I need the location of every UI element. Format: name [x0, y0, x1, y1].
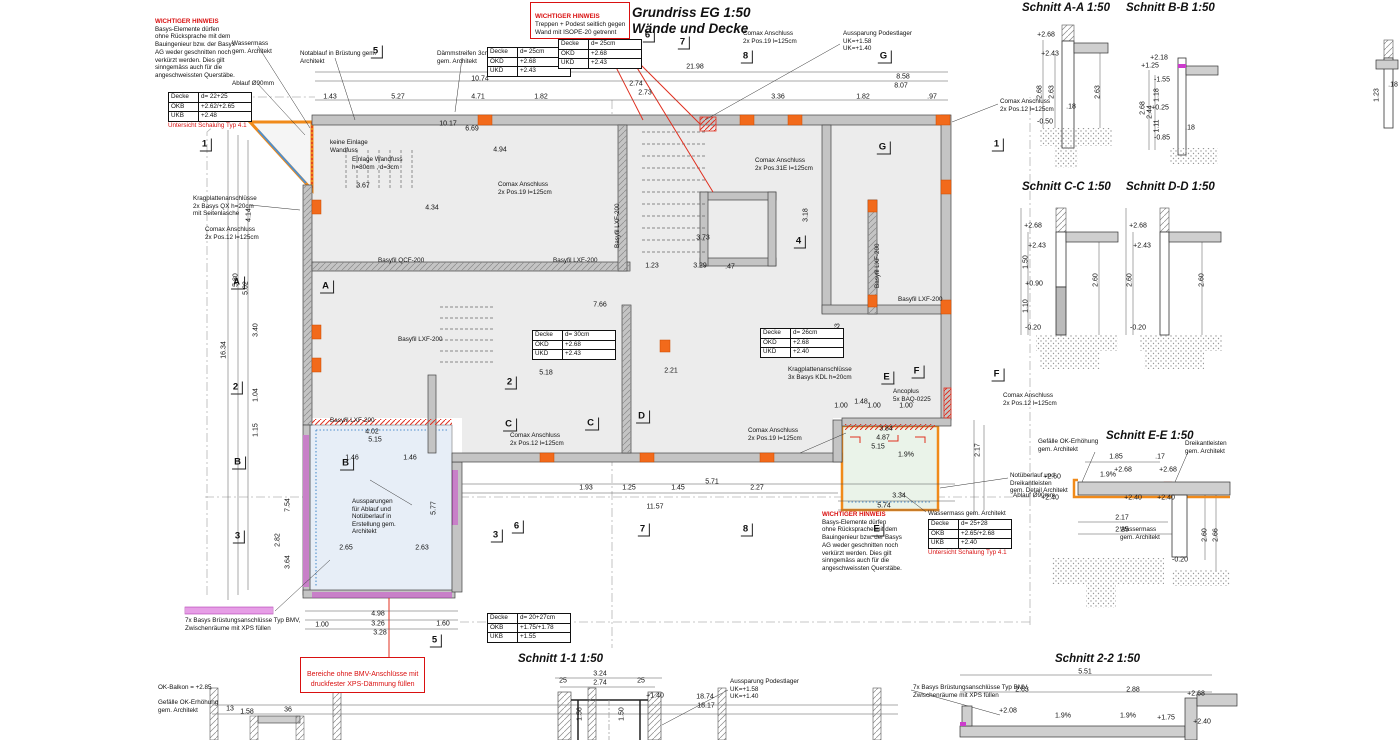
- annotation-label: Notablauf in Brüstung gem. Architekt: [300, 50, 376, 65]
- annotation-label: Comax Anschluss 2x Pos.19 l=125cm: [743, 30, 797, 45]
- dimension-label: 3.18: [803, 208, 810, 222]
- formwork-note: Untersicht Schalung Typ 4.1: [928, 549, 1007, 556]
- dimension-label: 5.74: [877, 503, 891, 510]
- grid-axis-label: 2: [231, 382, 243, 395]
- dimension-label: 2.68: [1037, 85, 1044, 99]
- grid-axis-label: C: [585, 418, 599, 431]
- dimension-label: 2.63: [1049, 85, 1056, 99]
- dimension-label: 5.77: [431, 501, 438, 515]
- dimension-label: .47: [725, 264, 735, 271]
- grid-axis-label: 3: [491, 530, 503, 543]
- dimension-label: -0.20: [1025, 325, 1041, 332]
- grid-axis-label: 8: [741, 51, 753, 64]
- dimension-label: +2.40: [1124, 495, 1142, 502]
- important-note-box: WICHTIGER HINWEISTreppen + Podest seitli…: [530, 2, 630, 39]
- dimension-label: 3.84: [879, 426, 893, 433]
- grid-axis-label: A: [320, 281, 334, 294]
- dimension-label: 4.71: [471, 94, 485, 101]
- dimension-label: 2.60: [1093, 273, 1100, 287]
- annotation-label: Comax Anschluss 2x Pos.19 l=125cm: [748, 427, 802, 442]
- grid-axis-label: E: [871, 524, 884, 537]
- dimension-label: +2.68: [1187, 691, 1205, 698]
- dimension-label: -0.85: [1154, 135, 1170, 142]
- dimension-label: 1.50: [619, 707, 626, 721]
- annotation-label: 7x Basys Brüstungsanschlüsse Typ BMV, Zw…: [913, 684, 1029, 699]
- dimension-label: .97: [927, 94, 937, 101]
- dimension-label: 4.02: [365, 429, 379, 436]
- dimension-label: .18: [1066, 104, 1076, 111]
- grid-axis-label: 8: [741, 524, 753, 537]
- annotation-label: Basyfil LXF-200: [874, 244, 882, 288]
- dimension-label: 1.46: [403, 455, 417, 462]
- dimension-label: 5.27: [391, 94, 405, 101]
- annotation-label: OK-Balkon = +2.85: [158, 684, 212, 692]
- important-note-mid-right: WICHTIGER HINWEISBasys-Elemente dürfen o…: [822, 503, 902, 573]
- annotation-label: Aussparung Podestlager UK=+1.58 UK=+1.40: [730, 678, 799, 701]
- dimension-label: 2.88: [1126, 687, 1140, 694]
- dimension-label: 2.60: [1199, 273, 1206, 287]
- dimension-label: +2.68: [1159, 467, 1177, 474]
- dimension-label: 2.25: [1115, 527, 1129, 534]
- dimension-label: 11.57: [647, 504, 664, 511]
- annotation-label: Kragplattenanschlüsse 3x Basys KDL h=20c…: [788, 366, 852, 381]
- annotation-label: Einlage Wandfuss h=80cm , d=3cm: [352, 156, 403, 171]
- section-22: [960, 694, 1237, 740]
- dimension-label: +2.60: [1043, 474, 1061, 481]
- dimension-label: 2.74: [629, 81, 643, 88]
- dimension-label: 2.21: [664, 368, 678, 375]
- dimension-label: 2.44: [1147, 105, 1154, 119]
- dimension-label: 4.94: [493, 147, 507, 154]
- section-cc: [1036, 208, 1118, 369]
- dimension-label: 10.17: [439, 121, 457, 128]
- dimension-label: 1.9%: [1055, 713, 1071, 720]
- annotation-label: Comax Anschluss 2x Pos.12 l=125cm: [205, 226, 259, 241]
- dimension-label: 5.80: [233, 273, 240, 287]
- dimension-label: 1.45: [671, 485, 685, 492]
- grid-axis-label: F: [912, 366, 925, 379]
- dimension-label: 5.71: [705, 479, 719, 486]
- annotation-label: keine Einlage Wandfuss: [330, 139, 368, 154]
- grid-axis-label: E: [881, 372, 894, 385]
- annotation-label: Gefälle OK-Erhöhung gem. Architekt: [158, 699, 218, 714]
- dimension-label: .18: [1388, 82, 1398, 89]
- annotation-label: Dämmstreifen 3cm gem. Architekt: [437, 50, 490, 65]
- section-title: Schnitt 2-2 1:50: [1055, 653, 1140, 665]
- deck-table: Decked= 26cmOKD+2.68UKD+2.40: [760, 328, 844, 358]
- deck-table: Decked= 25+28OKB+2.65/+2.68UKB+2.40: [928, 519, 1012, 549]
- annotation-label: Comax Anschluss 2x Pos.12 l=125cm: [1003, 392, 1057, 407]
- dimension-label: .17: [1155, 454, 1165, 461]
- section-title: Schnitt C-C 1:50: [1022, 181, 1111, 193]
- dimension-label: +1.40: [646, 693, 664, 700]
- grid-axis-label: 2: [505, 377, 517, 390]
- dimension-label: 21.98: [686, 64, 704, 71]
- dimension-label: 18.74: [696, 694, 714, 701]
- section-title: Schnitt D-D 1:50: [1126, 181, 1215, 193]
- annotation-label: Basyfil LXF-200: [553, 257, 597, 265]
- grid-axis-label: F: [992, 369, 1005, 382]
- dimension-label: 3.67: [356, 183, 370, 190]
- dimension-label: 2.66: [1213, 528, 1220, 542]
- dimension-label: 3.24: [593, 671, 607, 678]
- drawing-sheet: Grundriss EG 1:50Wände und Decke WICHTIG…: [0, 0, 1400, 740]
- dimension-label: 1.60: [436, 621, 450, 628]
- annotation-label: Wassermass gem. Architekt: [928, 510, 1006, 518]
- dimension-label: +2.68: [1037, 32, 1055, 39]
- dimension-label: 3.40: [253, 323, 260, 337]
- grid-axis-label: C: [503, 419, 517, 432]
- dimension-label: +2.68: [1129, 223, 1147, 230]
- dimension-label: +2.68: [1024, 223, 1042, 230]
- grid-axis-label: 5: [430, 635, 442, 648]
- dimension-label: 2.63: [415, 545, 429, 552]
- dimension-label: 1.15: [253, 423, 260, 437]
- section-title: Schnitt E-E 1:50: [1106, 430, 1194, 442]
- annotation-label: Basyfil LXF-200: [398, 336, 442, 344]
- dimension-label: +2.43: [1041, 51, 1059, 58]
- dimension-label: 7.54: [285, 498, 292, 512]
- dimension-label: 2.74: [593, 680, 607, 687]
- annotation-label: Aussparung Podestlager UK=+1.58 UK=+1.40: [843, 30, 912, 53]
- dimension-label: 5.18: [539, 370, 553, 377]
- dimension-label: 4.87: [876, 435, 890, 442]
- dimension-label: 5.51: [1078, 669, 1092, 676]
- dimension-label: -1.55: [1154, 77, 1170, 84]
- annotation-label: Basyfil LXF-200: [614, 204, 622, 248]
- annotation-label: Aussparungen für Ablauf und Notüberlauf …: [352, 498, 396, 536]
- dimension-label: 2.17: [1115, 515, 1129, 522]
- grid-axis-label: 1: [992, 139, 1004, 152]
- dimension-label: 10.74: [471, 76, 489, 83]
- dimension-label: 1.00: [315, 622, 329, 629]
- dimension-label: 36: [284, 707, 292, 714]
- annotation-label: Comax Anschluss 2x Pos.31E l=125cm: [755, 157, 813, 172]
- dimension-label: 3.36: [771, 94, 785, 101]
- dimension-label: 5.15: [871, 444, 885, 451]
- dimension-label: 1.9%: [898, 452, 914, 459]
- dimension-label: 2.60: [1202, 528, 1209, 542]
- deck-table: Decked= 22+25OKB+2.62/+2.65UKB+2.48: [168, 92, 252, 122]
- dimension-label: +1.75: [1157, 715, 1175, 722]
- dimension-label: 25: [637, 678, 645, 685]
- deck-table: Decked= 20+27cmOKB+1.75/+1.78UKB+1.55: [487, 613, 571, 643]
- annotation-label: 7x Basys Brüstungsanschlüsse Typ BMV, Zw…: [185, 617, 301, 632]
- dimension-label: 1.85: [1109, 454, 1123, 461]
- dimension-label: 6.69: [465, 126, 479, 133]
- dimension-label: -0.50: [1037, 119, 1053, 126]
- annotation-label: Comax Anschluss 2x Pos.12 l=125cm: [1000, 98, 1054, 113]
- dimension-label: 7.66: [593, 302, 607, 309]
- grid-axis-label: 6: [643, 30, 655, 43]
- grid-axis-label: 4: [794, 236, 806, 249]
- deck-table: Decked= 25cmOKD+2.68UKD+2.43: [558, 39, 642, 69]
- dimension-label: 1.82: [856, 94, 870, 101]
- dimension-label: 1.10: [1023, 299, 1030, 313]
- dimension-label: +2.43: [1133, 243, 1151, 250]
- dimension-label: 3.28: [373, 630, 387, 637]
- dimension-label: 1.9%: [1100, 472, 1116, 479]
- annotation-label: Ancoplus 5x BAQ-0225: [893, 388, 931, 403]
- grid-axis-label: 7: [678, 37, 690, 50]
- dimension-label: 2.17: [975, 443, 982, 457]
- dimension-label: 3.29: [693, 263, 707, 270]
- grid-axis-label: B: [232, 457, 246, 470]
- dimension-label: 1.00: [867, 403, 881, 410]
- dimension-label: +2.08: [999, 708, 1017, 715]
- dimension-label: 1.04: [253, 388, 260, 402]
- dimension-label: 8.07: [894, 83, 908, 90]
- dimension-label: .18: [1185, 125, 1195, 132]
- dimension-label: 1.23: [645, 263, 659, 270]
- dimension-label: 1.82: [534, 94, 548, 101]
- xps-note-box: Bereiche ohne BMV-Anschlüsse mit druckfe…: [300, 657, 425, 693]
- dimension-label: -0.20: [1172, 557, 1188, 564]
- dimension-label: 1.00: [899, 403, 913, 410]
- dimension-label: 5.15: [368, 437, 382, 444]
- section-title: Schnitt A-A 1:50: [1022, 2, 1110, 14]
- section-title: Schnitt B-B 1:50: [1126, 2, 1215, 14]
- dimension-label: 1.46: [345, 455, 359, 462]
- dimension-label: 1.43: [323, 94, 337, 101]
- dimension-label: 25: [559, 678, 567, 685]
- dimension-label: 1.25: [622, 485, 636, 492]
- dimension-label: +1.25: [1141, 63, 1159, 70]
- grid-axis-label: 6: [512, 521, 524, 534]
- section-dd: [1140, 208, 1222, 369]
- dimension-label: 2.63: [1095, 85, 1102, 99]
- annotation-label: Basyfil LXF-200: [330, 417, 374, 425]
- dimension-label: +2.43: [1028, 243, 1046, 250]
- dimension-label: 3.34: [892, 493, 906, 500]
- dimension-label: 13: [226, 706, 234, 713]
- annotation-label: Comax Anschluss 2x Pos.19 l=125cm: [498, 181, 552, 196]
- dimension-label: 2.60: [1127, 273, 1134, 287]
- dimension-label: 16.34: [221, 341, 228, 359]
- dimension-label: 2.27: [750, 485, 764, 492]
- dimension-label: 1.11: [1154, 119, 1161, 132]
- dimension-label: 1.00: [834, 403, 848, 410]
- annotation-label: Gefälle OK-Erhöhung gem. Architekt: [1038, 438, 1098, 453]
- annotation-label: Basyfil LXF-200: [898, 296, 942, 304]
- dimension-label: 2.68: [1140, 101, 1147, 115]
- dimension-label: -0.20: [1130, 325, 1146, 332]
- dimension-label: 1.50: [1023, 255, 1030, 269]
- dimension-label: 4.98: [371, 611, 385, 618]
- dimension-label: 1.93: [579, 485, 593, 492]
- annotation-label: Wassermass gem. Architekt: [232, 40, 272, 55]
- dimension-label: +2.68: [1114, 467, 1132, 474]
- dimension-label: 2.73: [638, 90, 652, 97]
- annotation-label: Ablauf Ø90mm: [232, 80, 274, 88]
- dimension-label: 3.26: [371, 621, 385, 628]
- dimension-label: +0.90: [1025, 281, 1043, 288]
- dimension-label: 2.63: [1015, 687, 1029, 694]
- dimension-label: 1.56: [577, 707, 584, 721]
- dimension-label: 2.82: [275, 533, 282, 547]
- annotation-label: Basyfil QCF-200: [378, 257, 424, 265]
- annotation-label: Dreikantleisten gem. Architekt: [1185, 440, 1227, 455]
- dimension-label: 2.65: [339, 545, 353, 552]
- dimension-label: 8.58: [896, 74, 910, 81]
- dimension-label: +2.18: [1150, 55, 1168, 62]
- annotation-label: Comax Anschluss 2x Pos.12 l=125cm: [510, 432, 564, 447]
- grid-axis-label: 1: [200, 139, 212, 152]
- grid-axis-label: G: [877, 142, 891, 155]
- dimension-label: 4.34: [425, 205, 439, 212]
- dimension-label: 4.14: [246, 208, 253, 222]
- dimension-label: +0.25: [1151, 105, 1169, 112]
- section-title: Schnitt 1-1 1:50: [518, 653, 603, 665]
- dimension-label: 3.64: [285, 555, 292, 569]
- dimension-label: 3.73: [696, 235, 710, 242]
- dimension-label: 1.9%: [1120, 713, 1136, 720]
- important-note-top-left: WICHTIGER HINWEISBasys-Elemente dürfen o…: [155, 10, 235, 80]
- dimension-label: +2.40: [1193, 719, 1211, 726]
- dimension-label: +2.40: [1157, 495, 1175, 502]
- dimension-label: +2.40: [1041, 495, 1059, 502]
- dimension-label: 1.18: [1154, 88, 1161, 102]
- dimension-label: 1.23: [1374, 88, 1381, 102]
- grid-axis-label: 7: [638, 524, 650, 537]
- grid-axis-label: 3: [233, 531, 245, 544]
- dimension-label: 18.17: [697, 703, 715, 710]
- dimension-label: 1.48: [854, 399, 868, 406]
- dimension-label: 1.58: [240, 709, 254, 716]
- formwork-note: Untersicht Schalung Typ 4.1: [168, 122, 247, 129]
- deck-table: Decked= 30cmOKD+2.68UKD+2.43: [532, 330, 616, 360]
- dimension-label: 5.02: [243, 281, 250, 295]
- grid-axis-label: D: [636, 411, 650, 424]
- section-bb: [1170, 58, 1218, 164]
